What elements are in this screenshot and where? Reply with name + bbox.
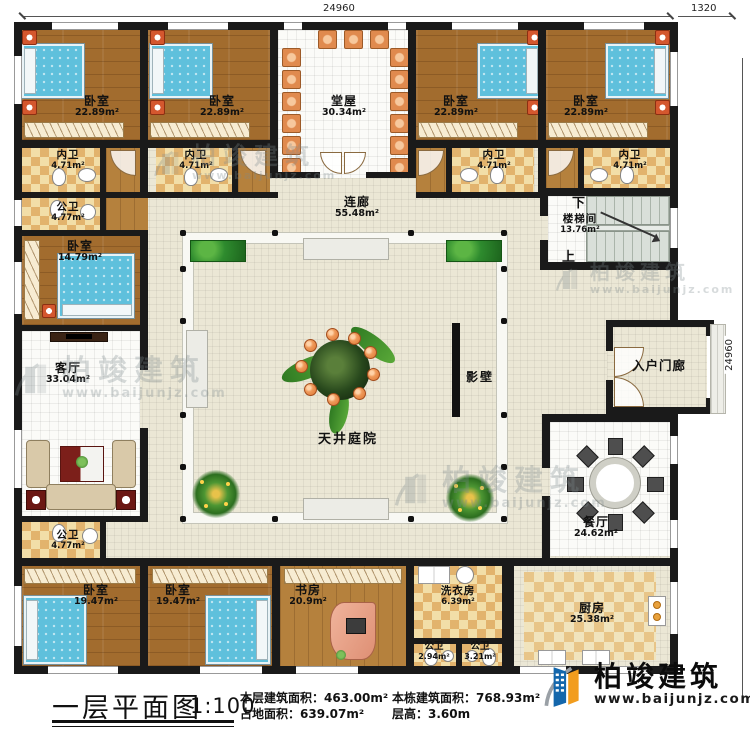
dining-chair	[608, 438, 623, 455]
room-label-bath: 公卫2.94m²	[418, 642, 450, 662]
room-label-corridor: 连廊55.48m²	[335, 196, 379, 220]
column-dot	[501, 464, 507, 470]
hall-chair	[370, 30, 389, 49]
room-label-bath: 公卫4.77m²	[51, 202, 85, 223]
wall	[100, 198, 106, 230]
bed-pillow	[152, 48, 164, 94]
room-label-ensuite: 内卫4.71m²	[613, 150, 647, 171]
stat-value: 3.60m	[428, 706, 470, 722]
hall-chair	[282, 136, 301, 155]
stat-value: 639.07m²	[300, 706, 364, 722]
wall	[14, 516, 148, 522]
window	[584, 22, 644, 30]
computer	[346, 618, 366, 634]
wardrobe	[24, 240, 40, 320]
stat-label: 本层建筑面积：	[240, 690, 324, 706]
stat-value: 768.93m²	[476, 690, 540, 706]
bed-pillow	[654, 48, 666, 94]
bed	[606, 44, 668, 98]
column-dot	[501, 412, 507, 418]
fruit-icon	[295, 360, 308, 373]
room-label-dining: 餐厅24.62m²	[574, 516, 618, 540]
column-dot	[180, 266, 186, 272]
column-dot	[180, 516, 186, 522]
nightstand	[22, 30, 37, 45]
wall	[140, 428, 148, 516]
wall	[606, 380, 613, 407]
title-underline	[52, 726, 234, 727]
plant-flower	[200, 480, 204, 484]
table-plant	[76, 456, 88, 468]
hall-chair	[390, 48, 409, 67]
wall	[278, 172, 320, 178]
wall	[100, 148, 106, 192]
hall-chair	[282, 48, 301, 67]
wall	[416, 140, 670, 148]
hedge-planter	[446, 240, 502, 262]
wall	[366, 172, 408, 178]
wall	[14, 22, 22, 674]
room-label-main-hall: 堂屋30.34m²	[322, 95, 366, 119]
fruit-icon	[367, 368, 380, 381]
window	[14, 56, 22, 104]
bed	[150, 44, 212, 98]
window	[168, 22, 228, 30]
wall	[606, 320, 714, 327]
window	[452, 22, 518, 30]
window	[670, 582, 678, 634]
window	[670, 436, 678, 464]
stair-up-label: 上	[562, 246, 575, 265]
sink	[460, 168, 478, 182]
courtyard-tree	[298, 330, 382, 414]
fruit-icon	[353, 387, 366, 400]
plant-flower	[226, 482, 230, 486]
window	[52, 22, 118, 30]
stat-label: 层高：	[392, 706, 428, 722]
stat-row: 本层建筑面积：463.00m²	[240, 690, 388, 706]
wall	[606, 327, 613, 351]
wall	[606, 407, 714, 414]
room-label-bedroom: 卧室22.89m²	[434, 95, 478, 119]
plant-flower	[454, 484, 458, 488]
bed-pillow	[26, 600, 38, 660]
sofa	[46, 484, 116, 510]
stove-burner	[653, 613, 661, 621]
bed-pillow	[62, 304, 132, 316]
room-label-bedroom: 卧室19.47m²	[156, 584, 200, 608]
fruit-icon	[304, 383, 317, 396]
hall-chair	[390, 136, 409, 155]
room-label-study: 书房20.9m²	[289, 584, 327, 608]
plant-flower	[224, 502, 228, 506]
fruit-icon	[364, 346, 377, 359]
bench	[303, 238, 389, 260]
column-dot	[180, 230, 186, 236]
stat-value: 463.00m²	[324, 690, 388, 706]
window	[14, 262, 22, 314]
window	[14, 200, 22, 226]
bed	[22, 44, 84, 98]
plant-flower	[458, 508, 462, 512]
wall	[140, 325, 148, 370]
bed	[206, 596, 270, 664]
screen-wall-label: 影壁	[466, 368, 494, 385]
room-label-bedroom: 卧室22.89m²	[75, 95, 119, 119]
plant-flower	[204, 504, 208, 508]
wall	[416, 192, 546, 198]
room-label-laundry: 洗衣房6.39m²	[441, 586, 476, 607]
wall	[140, 22, 148, 192]
room-label-living-room: 客厅33.04m²	[46, 362, 90, 386]
washing-machine	[418, 566, 450, 584]
floor-corridor-wood-5	[106, 198, 148, 230]
room-label-bath: 公卫4.77m²	[51, 530, 85, 551]
screen-wall	[452, 323, 460, 417]
armchair	[26, 440, 50, 488]
column-dot	[180, 318, 186, 324]
wardrobe	[24, 122, 124, 138]
hall-chair	[318, 30, 337, 49]
plant-flower	[480, 486, 484, 490]
room-label-bedroom: 卧室14.79m²	[58, 240, 102, 264]
stat-label: 本栋建筑面积：	[392, 690, 476, 706]
stat-row: 本栋建筑面积：768.93m²	[392, 690, 540, 706]
wall	[538, 22, 546, 192]
window	[14, 430, 22, 488]
column-dot	[501, 318, 507, 324]
bed-pillow	[24, 48, 36, 94]
wall	[272, 558, 280, 674]
side-table	[26, 490, 46, 510]
wall	[14, 230, 148, 236]
fruit-icon	[304, 339, 317, 352]
window	[284, 22, 302, 30]
column-dot	[408, 516, 414, 522]
dimension-right-value: 24960	[724, 336, 736, 374]
wall	[140, 558, 148, 674]
room-label-ensuite: 内卫4.71m²	[51, 150, 85, 171]
room-label-bedroom: 卧室22.89m²	[200, 95, 244, 119]
wardrobe	[152, 568, 268, 584]
stat-row: 层高：3.60m	[392, 706, 540, 722]
bed-pillow	[526, 48, 538, 94]
fruit-icon	[327, 393, 340, 406]
side-table	[116, 490, 136, 510]
wall	[540, 188, 678, 196]
wall	[14, 558, 678, 566]
porch-label: 入户门廊	[632, 355, 686, 374]
legend-stats-col-1: 本层建筑面积：463.00m² 占地面积：639.07m²	[240, 690, 388, 722]
brand-url: www.baijunjz.com	[594, 691, 750, 707]
hall-chair	[390, 114, 409, 133]
wardrobe	[150, 122, 250, 138]
hall-chair	[282, 114, 301, 133]
dimension-top-value: 24960	[320, 3, 358, 15]
legend-stats-col-2: 本栋建筑面积：768.93m² 层高：3.60m	[392, 690, 540, 722]
window	[200, 666, 262, 674]
brand-logo: 柏竣建筑 www.baijunjz.com	[538, 660, 750, 710]
dining-table	[590, 458, 640, 508]
dimension-line-right	[742, 58, 743, 700]
column-dot	[408, 230, 414, 236]
nightstand	[42, 304, 56, 318]
hall-chair	[282, 92, 301, 111]
hall-chair	[282, 70, 301, 89]
wall	[14, 192, 278, 198]
dining-chair	[567, 477, 584, 492]
wall	[542, 414, 678, 422]
room-label-stairwell: 楼梯间13.76m²	[560, 214, 599, 235]
tv	[66, 334, 92, 339]
dimension-top-right-value: 1320	[688, 3, 719, 15]
wall	[100, 522, 106, 558]
bookshelf	[284, 568, 402, 584]
column-dot	[180, 412, 186, 418]
room-label-bedroom: 卧室19.47m²	[74, 584, 118, 608]
wall	[14, 140, 278, 148]
stat-label: 占地面积：	[240, 706, 300, 722]
nightstand	[150, 100, 165, 115]
bed	[478, 44, 540, 98]
room-label-kitchen: 厨房25.38m²	[570, 602, 614, 626]
column-dot	[272, 516, 278, 522]
nightstand	[150, 30, 165, 45]
potted-plant	[446, 474, 494, 522]
wardrobe	[24, 568, 136, 584]
wall	[232, 148, 238, 192]
brand-logo-icon	[538, 660, 588, 710]
wardrobe	[418, 122, 518, 138]
armchair	[112, 440, 136, 488]
room-label-bedroom: 卧室22.89m²	[564, 95, 608, 119]
wall	[408, 22, 416, 178]
window	[670, 52, 678, 106]
wall	[446, 148, 452, 192]
stat-row: 占地面积：639.07m²	[240, 706, 388, 722]
stove-burner	[653, 601, 661, 609]
brand-name: 柏竣建筑	[594, 663, 750, 691]
wall	[502, 558, 514, 674]
nightstand	[22, 100, 37, 115]
fruit-icon	[326, 328, 339, 341]
room-label-bath: 公卫3.21m²	[464, 642, 496, 662]
courtyard-label: 天井庭院	[318, 428, 378, 447]
hall-chair	[390, 70, 409, 89]
wall	[540, 262, 678, 270]
nightstand	[655, 30, 670, 45]
dimension-line-top	[22, 16, 672, 17]
column-dot	[272, 230, 278, 236]
wall	[578, 148, 584, 192]
wall	[406, 558, 414, 674]
stair-down-label: 下	[572, 192, 585, 211]
wall	[140, 230, 148, 331]
title-underline	[52, 720, 234, 723]
column-dot	[501, 230, 507, 236]
wall	[540, 196, 548, 216]
fruit-icon	[348, 332, 361, 345]
wall	[542, 496, 550, 558]
window	[48, 666, 118, 674]
room-label-ensuite: 内卫4.71m²	[179, 150, 213, 171]
potted-plant	[192, 470, 240, 518]
nightstand	[655, 100, 670, 115]
bench	[186, 330, 208, 408]
column-dot	[501, 516, 507, 522]
desk-plant	[336, 650, 346, 660]
room-label-ensuite: 内卫4.71m²	[477, 150, 511, 171]
window	[670, 520, 678, 548]
wardrobe	[548, 122, 648, 138]
floor-plan-page: 卧室22.89m² 卧室22.89m² 堂屋30.34m² 卧室22.89m² …	[0, 0, 750, 731]
hedge-planter	[190, 240, 246, 262]
hall-chair	[344, 30, 363, 49]
plant-flower	[478, 506, 482, 510]
wall	[456, 644, 462, 666]
sink	[456, 566, 474, 584]
wall	[14, 325, 148, 331]
dining-chair	[647, 477, 664, 492]
bed-pillow	[256, 600, 268, 660]
wall	[542, 422, 550, 468]
window	[670, 208, 678, 248]
column-dot	[501, 266, 507, 272]
wall	[270, 22, 278, 178]
hall-chair	[390, 92, 409, 111]
window	[14, 586, 22, 646]
dimension-line-top-right	[678, 16, 734, 17]
sink	[590, 168, 608, 182]
window	[296, 666, 358, 674]
bench	[303, 498, 389, 520]
window	[388, 22, 406, 30]
column-dot	[180, 464, 186, 470]
